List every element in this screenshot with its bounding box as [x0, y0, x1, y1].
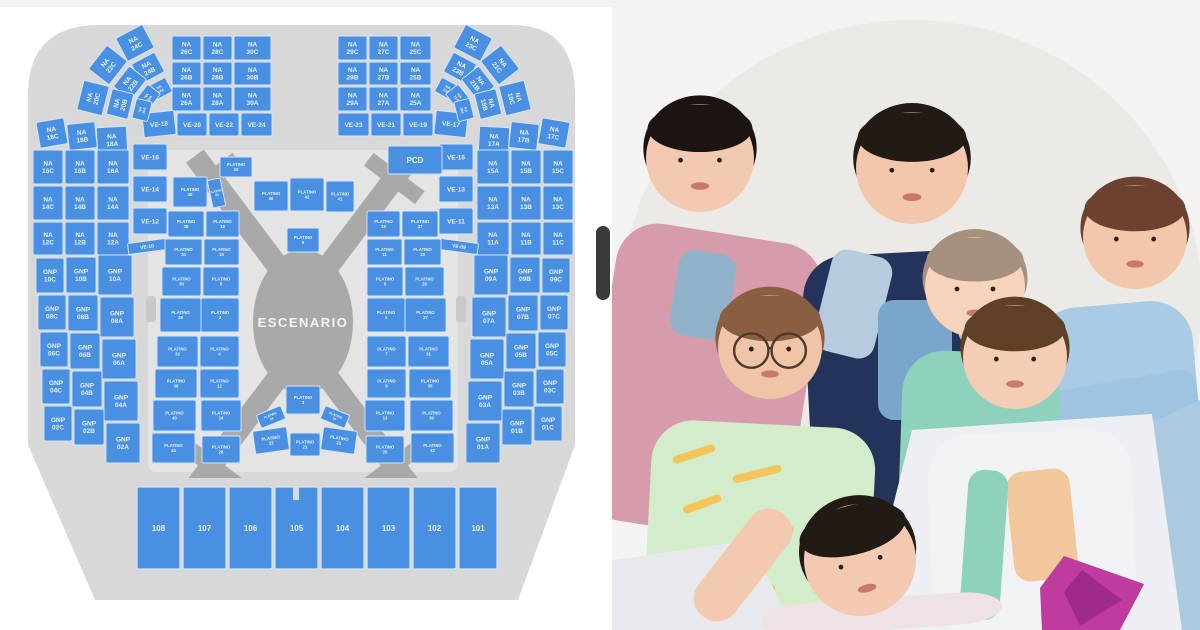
seat-section-na-17c[interactable]: NA17C: [538, 118, 570, 148]
seat-section-na-18c[interactable]: NA18C: [36, 118, 68, 148]
svg-text:GNP02B: GNP02B: [82, 421, 97, 435]
svg-text:GNP01C: GNP01C: [541, 417, 556, 431]
svg-text:GNP04A: GNP04A: [114, 395, 129, 409]
svg-text:NA30C: NA30C: [247, 42, 259, 56]
svg-text:GNP06A: GNP06A: [112, 353, 127, 367]
seat-section-na-29c[interactable]: NA29C: [338, 36, 367, 60]
seat-section-108[interactable]: 108: [137, 487, 180, 569]
seat-section-platino-10[interactable]: PLATINO10: [204, 239, 239, 265]
seat-section-gnp-04a[interactable]: GNP04A: [104, 381, 138, 421]
jungkook-head: [643, 95, 756, 212]
seat-section-platino-39[interactable]: PLATINO39: [410, 400, 453, 431]
seat-section-na-30a[interactable]: NA30A: [234, 87, 271, 111]
seat-section-na-14b[interactable]: NA14B: [65, 186, 95, 220]
svg-text:NA28A: NA28A: [212, 93, 224, 107]
seat-section-na-29b[interactable]: NA29B: [338, 62, 367, 85]
seat-section-na-14a[interactable]: NA14A: [97, 186, 129, 220]
seat-section-gnp-08c[interactable]: GNP08C: [38, 295, 66, 330]
seat-section-platino-28[interactable]: PLATINO28: [160, 298, 201, 332]
seat-section-gnp-05a[interactable]: GNP05A: [470, 339, 504, 379]
svg-text:106: 106: [244, 524, 258, 533]
field-tab-right: [456, 296, 466, 322]
seat-section-ve-12[interactable]: VE-12: [133, 208, 167, 234]
seat-section-platino-32[interactable]: PLATINO32: [157, 336, 198, 367]
svg-text:107: 107: [198, 524, 212, 533]
seat-section-na-28b[interactable]: NA28B: [203, 62, 232, 85]
svg-text:GNP03C: GNP03C: [543, 380, 558, 394]
seat-section-platino-3[interactable]: PLATINO3: [286, 386, 320, 414]
svg-text:GNP03B: GNP03B: [512, 383, 527, 397]
seat-section-platino-48[interactable]: PLATINO48: [173, 177, 207, 207]
svg-text:NA12B: NA12B: [74, 232, 86, 246]
svg-text:GNP10A: GNP10A: [108, 269, 123, 283]
svg-text:103: 103: [382, 524, 396, 533]
seat-section-gnp-02c[interactable]: GNP02C: [44, 406, 72, 441]
svg-text:NA14A: NA14A: [107, 197, 119, 211]
svg-text:GNP08B: GNP08B: [76, 307, 91, 321]
seat-section-platino-26[interactable]: PLATINO26: [202, 436, 240, 463]
seat-section-na-15c[interactable]: NA15C: [543, 150, 573, 184]
seat-section-ve-11[interactable]: VE-11: [439, 208, 473, 234]
svg-text:GNP03A: GNP03A: [478, 395, 493, 409]
seat-section-na-26b[interactable]: NA26B: [172, 62, 201, 85]
svg-text:VE-19: VE-19: [409, 122, 427, 129]
seat-section-ve-14[interactable]: VE-14: [133, 176, 167, 202]
svg-text:VE-15: VE-15: [447, 154, 465, 161]
svg-text:VE-14: VE-14: [141, 186, 159, 193]
svg-text:PCD: PCD: [407, 156, 424, 165]
svg-text:NA14B: NA14B: [74, 197, 86, 211]
svg-text:GNP04B: GNP04B: [80, 383, 95, 397]
seat-section-gnp-02b[interactable]: GNP02B: [74, 409, 104, 445]
divider-handle[interactable]: [596, 226, 610, 300]
seat-section-platino-13[interactable]: PLATINO13: [365, 400, 405, 431]
seat-section-gnp-05b[interactable]: GNP05B: [506, 333, 536, 369]
svg-text:GNP09C: GNP09C: [549, 269, 564, 283]
seat-section-na-13a[interactable]: NA13A: [477, 186, 509, 220]
seat-section-platino-23[interactable]: PLATINO23: [321, 427, 358, 455]
seat-section-gnp-05c[interactable]: GNP05C: [538, 332, 566, 367]
seat-section-platino-44[interactable]: PLATINO44: [152, 433, 195, 463]
seat-section-platino-12[interactable]: PLATINO12: [200, 369, 239, 398]
seat-section-platino-29[interactable]: PLATINO29: [405, 267, 444, 296]
seat-section-na-26a[interactable]: NA26A: [172, 87, 201, 111]
svg-text:VE-12: VE-12: [141, 218, 159, 225]
composite-image: ESCENARIO 108107106105104103102101 NA26C…: [0, 0, 1200, 630]
seat-section-na-17b[interactable]: NA17B: [509, 122, 540, 151]
svg-text:NA13A: NA13A: [487, 197, 499, 211]
seat-section-gnp-10c[interactable]: GNP10C: [36, 258, 64, 293]
svg-text:NA30A: NA30A: [247, 93, 259, 107]
svg-text:GNP08C: GNP08C: [45, 306, 60, 320]
seat-section-platino-11[interactable]: PLATINO11: [367, 239, 402, 265]
svg-text:NA15B: NA15B: [520, 161, 532, 175]
seat-section-na-30b[interactable]: NA30B: [234, 62, 271, 85]
seat-section-gnp-04c[interactable]: GNP04C: [42, 369, 70, 404]
group-photo: [612, 0, 1200, 630]
svg-text:VE-20: VE-20: [183, 122, 201, 129]
seat-section-ve-24[interactable]: VE-24: [241, 113, 272, 136]
svg-text:GNP09A: GNP09A: [484, 269, 499, 283]
svg-text:GNP01B: GNP01B: [510, 421, 525, 435]
seat-section-gnp-06c[interactable]: GNP06C: [40, 332, 68, 367]
seat-section-gnp-09c[interactable]: GNP09C: [542, 258, 570, 293]
seat-section-na-16b[interactable]: NA16B: [65, 150, 95, 184]
svg-text:GNP02A: GNP02A: [116, 437, 131, 451]
seat-section-na-27b[interactable]: NA27B: [369, 62, 398, 85]
seat-section-platino-9[interactable]: PLATINO9: [367, 369, 406, 398]
svg-text:GNP07C: GNP07C: [547, 306, 562, 320]
seat-section-pcd[interactable]: PCD: [388, 146, 442, 174]
svg-text:GNP07A: GNP07A: [482, 311, 497, 325]
seat-section-gnp-01c[interactable]: GNP01C: [534, 406, 562, 441]
svg-text:NA17A: NA17A: [488, 133, 501, 148]
seat-section-103[interactable]: 103: [367, 487, 410, 569]
svg-text:VE-13: VE-13: [447, 186, 465, 193]
grandstand: 108107106105104103102101: [128, 478, 506, 578]
svg-text:VE-11: VE-11: [447, 218, 465, 225]
svg-text:NA17B: NA17B: [517, 129, 531, 145]
seat-section-platino-18[interactable]: PLATINO18: [206, 211, 239, 237]
seat-section-ve-15[interactable]: VE-15: [439, 144, 473, 170]
seat-section-na-14c[interactable]: NA14C: [33, 186, 63, 220]
seat-section-platino-27[interactable]: PLATINO27: [405, 298, 446, 332]
svg-text:NA12A: NA12A: [107, 232, 119, 246]
seat-section-gnp-03a[interactable]: GNP03A: [468, 381, 502, 421]
seat-section-na-26c[interactable]: NA26C: [172, 36, 201, 60]
seat-section-platino-2[interactable]: PLATINO2: [201, 298, 239, 332]
seat-section-platino-36[interactable]: PLATINO36: [155, 369, 197, 398]
svg-text:NA29A: NA29A: [347, 93, 359, 107]
seat-section-gnp-02a[interactable]: GNP02A: [106, 423, 140, 463]
svg-text:VE-22: VE-22: [215, 122, 233, 129]
field-tab-left: [146, 296, 156, 322]
seat-section-platino-25[interactable]: PLATINO25: [366, 436, 404, 463]
v-head: [853, 103, 971, 224]
svg-text:NA12C: NA12C: [42, 232, 54, 246]
svg-text:GNP09B: GNP09B: [518, 269, 533, 283]
seat-section-platino-4[interactable]: PLATINO4: [200, 336, 239, 367]
svg-text:NA13B: NA13B: [520, 197, 532, 211]
svg-text:GNP05B: GNP05B: [514, 345, 529, 359]
svg-text:NA16A: NA16A: [107, 161, 119, 175]
svg-text:NA14C: NA14C: [42, 197, 54, 211]
svg-text:NA29B: NA29B: [347, 67, 359, 81]
svg-text:NA26B: NA26B: [181, 67, 193, 81]
seat-section-ve-19[interactable]: VE-19: [403, 113, 433, 136]
svg-text:108: 108: [152, 524, 166, 533]
seat-section-platino-30[interactable]: PLATINO30: [162, 267, 201, 296]
svg-text:GNP01A: GNP01A: [476, 437, 491, 451]
svg-text:NA29C: NA29C: [347, 42, 359, 56]
seat-section-na-11b[interactable]: NA11B: [511, 222, 541, 255]
svg-text:GNP04C: GNP04C: [49, 380, 64, 394]
seat-section-platino-5[interactable]: PLATINO5: [367, 267, 403, 296]
svg-text:NA27C: NA27C: [378, 42, 390, 56]
seat-section-na-11a[interactable]: NA11A: [477, 222, 509, 255]
svg-text:NA30B: NA30B: [247, 67, 259, 81]
jhope-head: [1080, 177, 1189, 289]
svg-text:NA28C: NA28C: [212, 42, 224, 56]
svg-text:NA16B: NA16B: [74, 161, 86, 175]
seat-section-platino-6[interactable]: PLATINO6: [287, 228, 319, 252]
group-photo-illustration: [612, 0, 1200, 630]
seat-section-platino-41[interactable]: PLATINO41: [326, 181, 354, 212]
seat-section-gnp-08b[interactable]: GNP08B: [68, 295, 98, 331]
seat-section-na-27c[interactable]: NA27C: [369, 36, 398, 60]
svg-text:NA25C: NA25C: [410, 42, 422, 56]
seat-section-platino-33[interactable]: PLATINO33: [404, 239, 441, 265]
seat-section-platino-21[interactable]: PLATINO21: [290, 433, 320, 456]
svg-text:NA13C: NA13C: [552, 197, 564, 211]
seat-section-platino-20[interactable]: PLATINO20: [220, 157, 252, 177]
svg-text:NA15C: NA15C: [552, 161, 564, 175]
seat-section-na-25a[interactable]: NA25A: [400, 87, 431, 111]
grandstand-notch: [293, 487, 299, 500]
svg-text:NA15A: NA15A: [487, 161, 499, 175]
svg-text:GNP07B: GNP07B: [516, 307, 531, 321]
seat-section-platino-7[interactable]: PLATINO7: [367, 336, 406, 367]
seat-section-na-15b[interactable]: NA15B: [511, 150, 541, 184]
seat-section-102[interactable]: 102: [413, 487, 456, 569]
seat-section-platino-43[interactable]: PLATINO43: [411, 433, 454, 463]
svg-text:105: 105: [290, 524, 304, 533]
seat-section-na-13b[interactable]: NA13B: [511, 186, 541, 220]
seat-section-na-18b[interactable]: NA18B: [67, 122, 98, 151]
jin-head: [960, 297, 1069, 409]
seat-section-106[interactable]: 106: [229, 487, 272, 569]
top-strip: [0, 0, 1200, 7]
seat-section-platino-42[interactable]: PLATINO42: [290, 178, 324, 211]
svg-text:NA25A: NA25A: [410, 93, 422, 107]
seat-section-gnp-09b[interactable]: GNP09B: [510, 257, 540, 293]
svg-text:GNP06B: GNP06B: [78, 345, 93, 359]
seat-section-ve-22[interactable]: VE-22: [209, 113, 239, 136]
svg-text:VE-24: VE-24: [247, 122, 265, 129]
svg-text:GNP05A: GNP05A: [480, 353, 495, 367]
seat-section-gnp-01a[interactable]: GNP01A: [466, 423, 500, 463]
rm-head: [715, 287, 824, 399]
seat-section-platino-31[interactable]: PLATINO31: [408, 336, 449, 367]
seat-section-na-13c[interactable]: NA13C: [543, 186, 573, 220]
svg-text:104: 104: [336, 524, 350, 533]
svg-text:VE-21: VE-21: [377, 122, 395, 129]
seat-section-gnp-01b[interactable]: GNP01B: [502, 409, 532, 445]
seat-section-platino-22[interactable]: PLATINO22: [253, 427, 290, 455]
seat-section-107[interactable]: 107: [183, 487, 226, 569]
seating-map: ESCENARIO 108107106105104103102101 NA26C…: [0, 0, 612, 630]
svg-text:102: 102: [428, 524, 442, 533]
seat-section-ve-20[interactable]: VE-20: [177, 113, 207, 136]
seat-section-platino-35[interactable]: PLATINO35: [409, 369, 451, 398]
svg-text:GNP05C: GNP05C: [545, 343, 560, 357]
seat-section-gnp-10a[interactable]: GNP10A: [98, 255, 132, 295]
seat-section-104[interactable]: 104: [321, 487, 364, 569]
svg-text:NA11C: NA11C: [552, 232, 564, 246]
seat-section-na-12c[interactable]: NA12C: [33, 222, 63, 255]
seat-section-gnp-07a[interactable]: GNP07A: [472, 297, 506, 337]
seat-section-na-16a[interactable]: NA16A: [97, 150, 129, 184]
seat-section-na-15a[interactable]: NA15A: [477, 150, 509, 184]
seat-section-gnp-09a[interactable]: GNP09A: [474, 255, 508, 295]
seat-section-na-25b[interactable]: NA25B: [400, 62, 431, 85]
seat-section-na-11c[interactable]: NA11C: [543, 222, 573, 255]
svg-text:NA28B: NA28B: [212, 67, 224, 81]
svg-text:NA27A: NA27A: [378, 93, 390, 107]
seat-section-platino-1[interactable]: PLATINO1: [367, 298, 405, 332]
svg-text:NA25B: NA25B: [410, 67, 422, 81]
seat-section-gnp-04b[interactable]: GNP04B: [72, 371, 102, 407]
seat-section-platino-19[interactable]: PLATINO19: [367, 211, 400, 237]
svg-text:VE-16: VE-16: [141, 154, 159, 161]
svg-text:VE-23: VE-23: [344, 122, 362, 129]
stage-label: ESCENARIO: [258, 315, 349, 330]
svg-text:GNP06C: GNP06C: [47, 343, 62, 357]
svg-text:NA11A: NA11A: [487, 232, 499, 246]
seat-section-na-12b[interactable]: NA12B: [65, 222, 95, 255]
seat-section-na-28a[interactable]: NA28A: [203, 87, 232, 111]
seat-section-ve-16[interactable]: VE-16: [133, 144, 167, 170]
seat-section-gnp-07b[interactable]: GNP07B: [508, 295, 538, 331]
svg-text:GNP10B: GNP10B: [74, 269, 89, 283]
seat-section-gnp-06a[interactable]: GNP06A: [102, 339, 136, 379]
svg-text:NA26C: NA26C: [181, 42, 193, 56]
seat-section-na-29a[interactable]: NA29A: [338, 87, 367, 111]
seat-section-gnp-08a[interactable]: GNP08A: [100, 297, 134, 337]
seat-section-ve-21[interactable]: VE-21: [371, 113, 401, 136]
seat-section-na-16c[interactable]: NA16C: [33, 150, 63, 184]
svg-text:NA27B: NA27B: [378, 67, 390, 81]
seat-section-na-27a[interactable]: NA27A: [369, 87, 398, 111]
svg-text:GNP02C: GNP02C: [51, 417, 66, 431]
svg-text:101: 101: [471, 524, 485, 533]
seat-section-platino-46[interactable]: PLATINO46: [254, 181, 288, 211]
seat-section-na-30c[interactable]: NA30C: [234, 36, 271, 60]
seat-section-na-28c[interactable]: NA28C: [203, 36, 232, 60]
seat-section-ve-23[interactable]: VE-23: [338, 113, 369, 136]
seat-section-gnp-07c[interactable]: GNP07C: [540, 295, 568, 330]
svg-text:NA16C: NA16C: [42, 161, 54, 175]
seat-section-na-12a[interactable]: NA12A: [97, 222, 129, 255]
svg-text:NA26A: NA26A: [181, 93, 193, 107]
seat-section-gnp-10b[interactable]: GNP10B: [66, 257, 96, 293]
seat-section-platino-38[interactable]: PLATINO38: [168, 211, 204, 237]
svg-text:GNP10C: GNP10C: [43, 269, 58, 283]
seat-section-platino-14[interactable]: PLATINO14: [201, 400, 241, 431]
seat-section-ve-13[interactable]: VE-13: [439, 176, 473, 202]
seat-section-gnp-06b[interactable]: GNP06B: [70, 333, 100, 369]
seat-section-gnp-03c[interactable]: GNP03C: [536, 369, 564, 404]
seat-section-na-25c[interactable]: NA25C: [400, 36, 431, 60]
seat-section-platino-37[interactable]: PLATINO37: [402, 211, 438, 237]
svg-text:NA11B: NA11B: [520, 232, 532, 246]
seat-section-101[interactable]: 101: [459, 487, 497, 569]
seat-section-platino-8[interactable]: PLATINO8: [203, 267, 239, 296]
seating-map-panel: ESCENARIO 108107106105104103102101 NA26C…: [0, 0, 612, 630]
seat-section-platino-40[interactable]: PLATINO40: [153, 400, 196, 431]
seat-section-platino-34[interactable]: PLATINO34: [165, 239, 202, 265]
svg-text:GNP08A: GNP08A: [110, 311, 125, 325]
seat-section-gnp-03b[interactable]: GNP03B: [504, 371, 534, 407]
